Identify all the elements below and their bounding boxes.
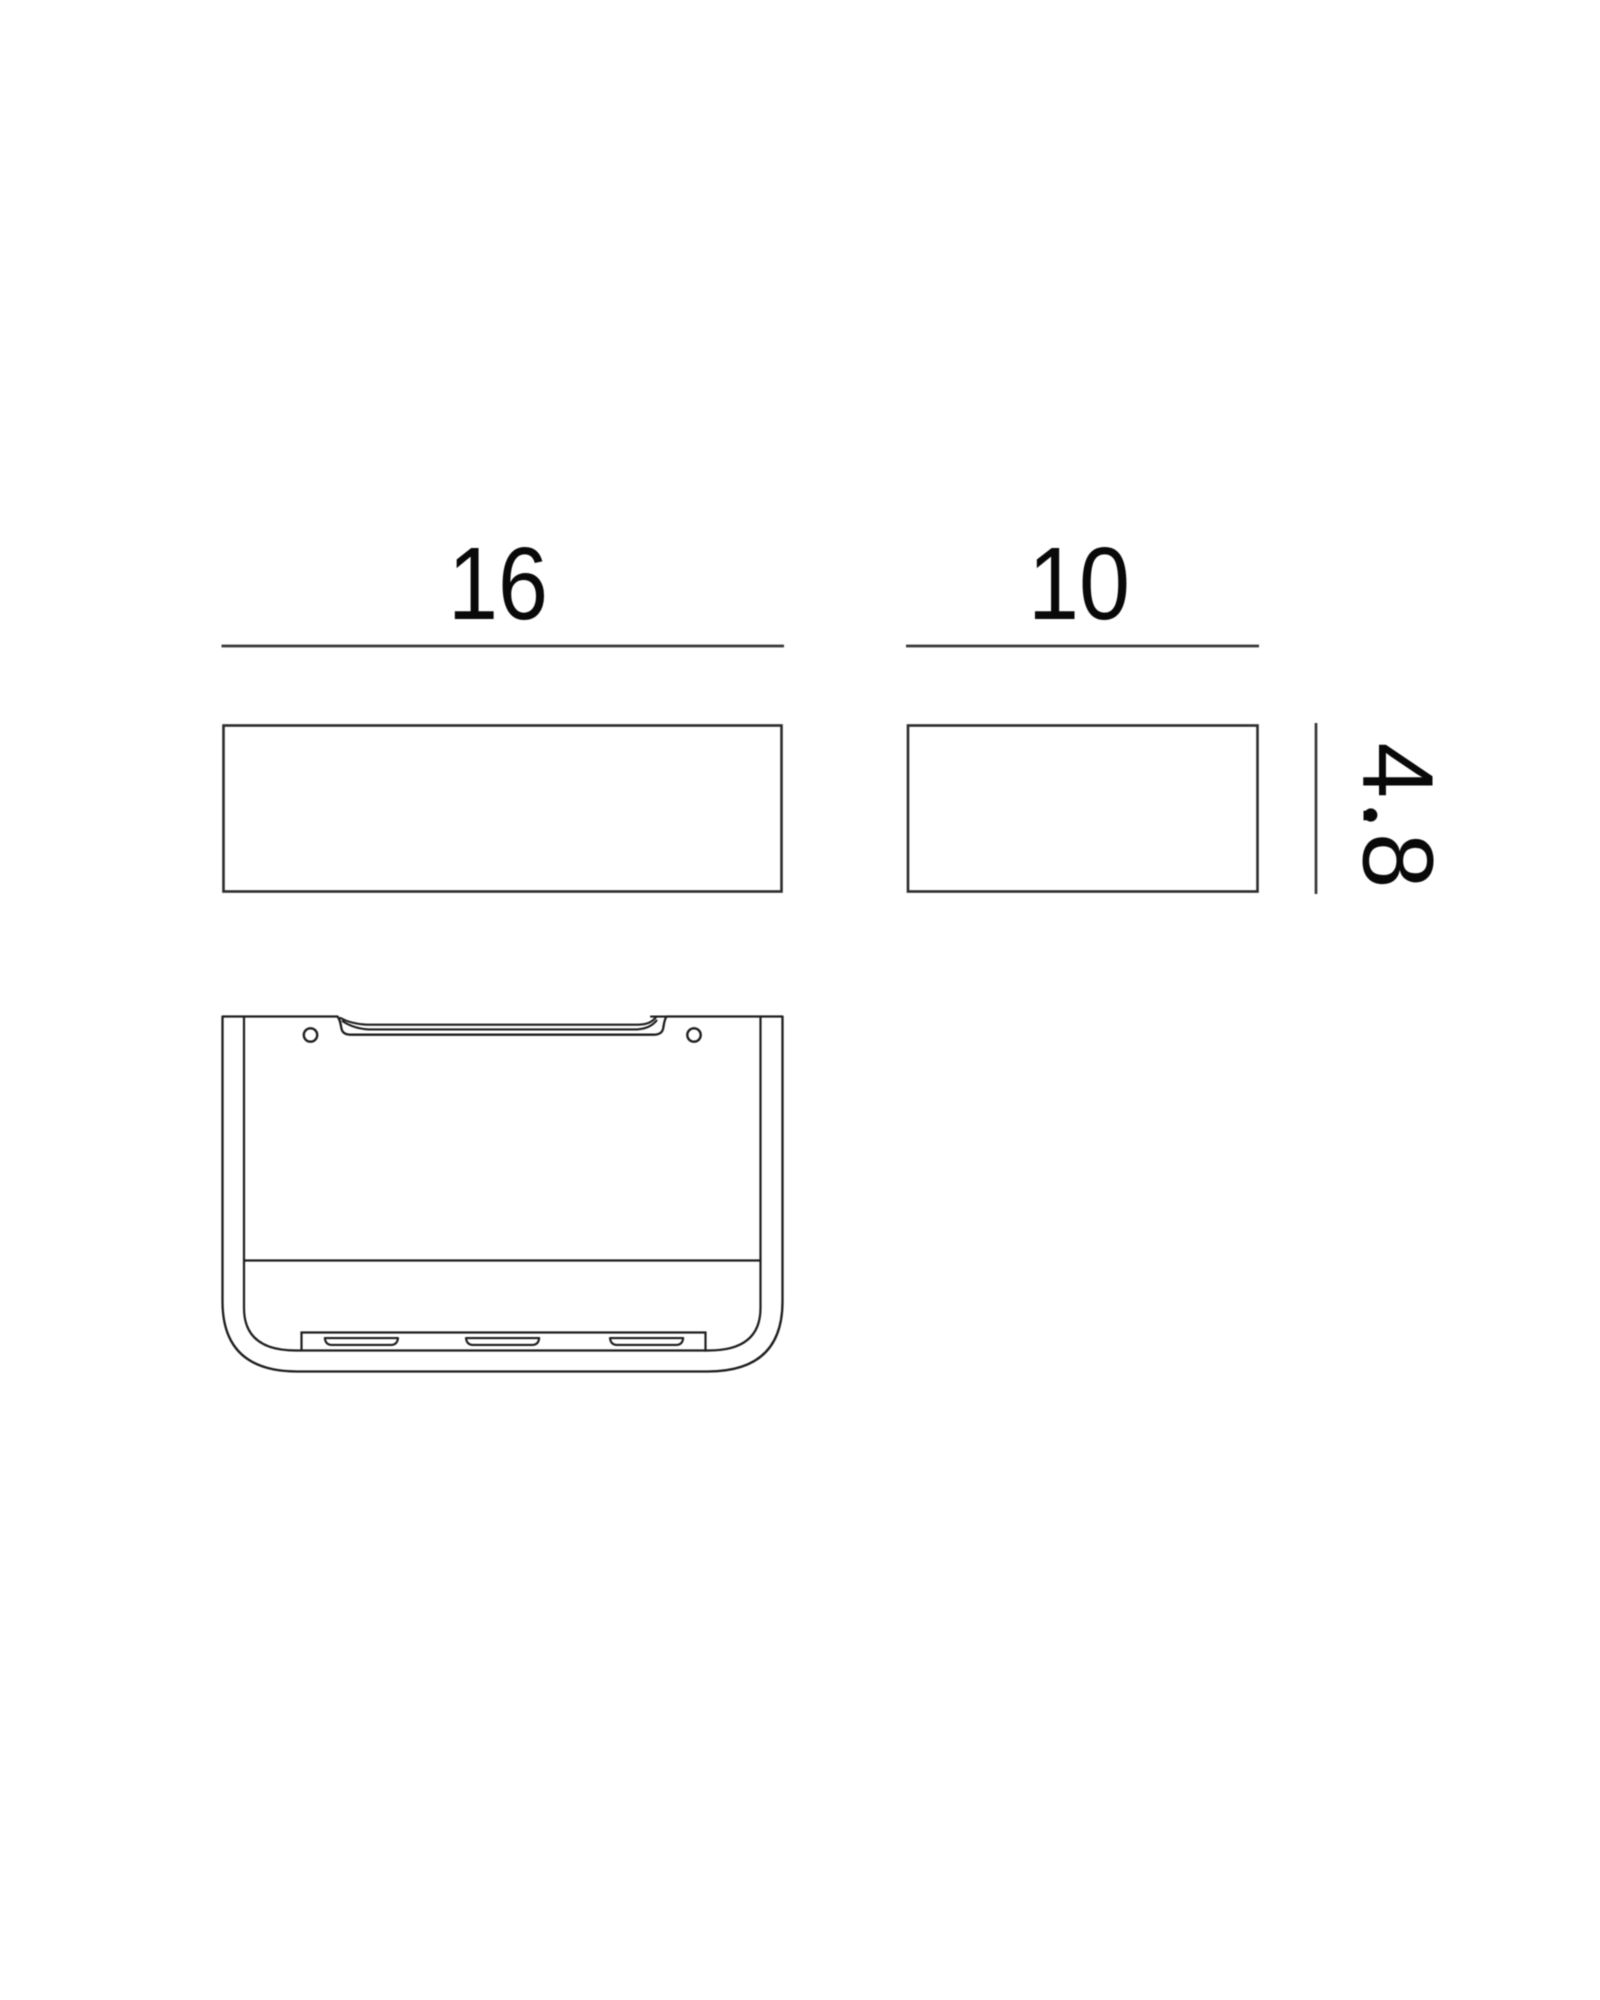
svg-text:10: 10: [1028, 526, 1130, 641]
svg-text:16: 16: [448, 526, 548, 641]
svg-text:4.8: 4.8: [1342, 743, 1454, 889]
